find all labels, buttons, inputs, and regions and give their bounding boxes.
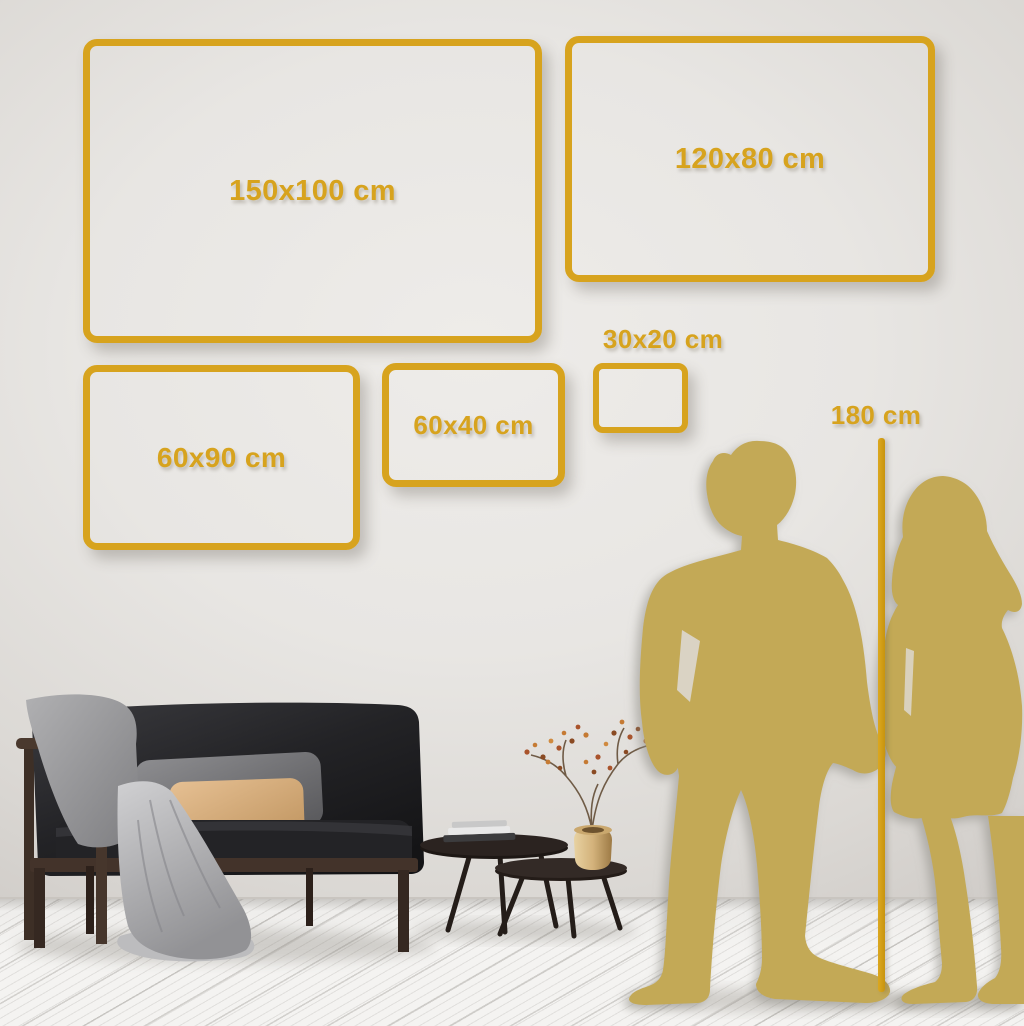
size-label-120x80: 120x80 cm (675, 145, 825, 174)
height-reference-line (878, 438, 885, 992)
size-frame-60x40: 60x40 cm (382, 363, 565, 487)
size-frame-30x20 (593, 363, 688, 433)
size-frame-150x100: 150x100 cm (83, 39, 542, 343)
wood-floor (0, 897, 1024, 1026)
size-label-30x20: 30x20 cm (578, 326, 748, 352)
size-label-150x100: 150x100 cm (229, 177, 396, 206)
size-label-60x40: 60x40 cm (413, 412, 533, 438)
size-frame-120x80: 120x80 cm (565, 36, 935, 282)
size-frame-60x90: 60x90 cm (83, 365, 360, 550)
height-label-180cm: 180 cm (796, 402, 956, 428)
size-label-60x90: 60x90 cm (157, 444, 286, 472)
